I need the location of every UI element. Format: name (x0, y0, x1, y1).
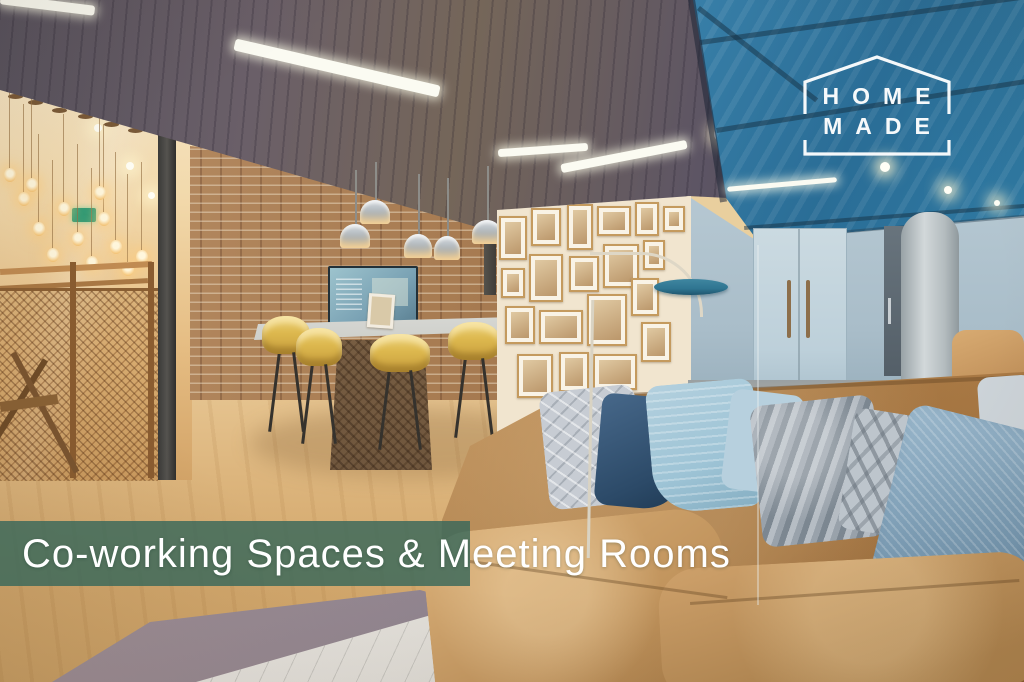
door-handle (787, 280, 791, 338)
mesh-post (70, 262, 76, 478)
mesh-post (148, 262, 154, 478)
festoon-bulb (72, 232, 84, 246)
caption-text: Co-working Spaces & Meeting Rooms (22, 533, 731, 575)
gallery-frame (517, 354, 553, 398)
door-split-line (798, 229, 800, 399)
logo-house-outline-bottom (805, 140, 949, 154)
gallery-frame (539, 310, 583, 344)
festoon-bulb (110, 240, 122, 254)
ceiling-spotlight (994, 200, 1000, 206)
downlight (148, 192, 155, 199)
festoon-bulb (4, 168, 16, 182)
gallery-frame (635, 202, 659, 236)
gallery-frame (529, 254, 563, 302)
gallery-frame (499, 216, 527, 260)
gallery-frame (559, 352, 589, 392)
ceiling-spotlight (880, 162, 890, 172)
bar-stool (448, 322, 500, 444)
festoon-bulb (26, 178, 38, 192)
door-handle (888, 298, 891, 324)
festoon-bulb (18, 192, 30, 206)
gallery-frame (501, 268, 525, 298)
photo-frame-on-table (367, 293, 395, 329)
home-made-logo: HOME MADE (799, 52, 955, 160)
festoon-bulb (47, 248, 59, 262)
gallery-frame (641, 322, 671, 362)
logo-text-line1: HOME (823, 83, 944, 109)
festoon-bulb (33, 222, 45, 236)
tv-menu-lines (336, 276, 362, 310)
photo-co-working-lounge: Co-working Spaces & Meeting Rooms HOME M… (0, 0, 1024, 682)
gallery-frame (597, 206, 631, 236)
festoon-bulb (58, 202, 70, 216)
gallery-frame (567, 204, 593, 250)
arc-lamp-shade (654, 279, 728, 295)
bar-stool (370, 334, 430, 456)
festoon-bulb (98, 212, 110, 226)
logo-text-line2: MADE (823, 113, 943, 139)
door-handle (806, 280, 810, 338)
downlight (94, 124, 102, 132)
chandelier-canopy (52, 108, 67, 113)
gallery-frame (531, 208, 561, 246)
thin-pole (757, 245, 759, 605)
bar-stool (296, 328, 342, 450)
exit-sign (72, 208, 96, 222)
downlight (126, 162, 134, 170)
concrete-column (901, 212, 959, 384)
gallery-frame (663, 206, 685, 232)
pendant-lamp (434, 178, 460, 260)
pendant-lamp (360, 162, 390, 224)
ceiling-spotlight (944, 186, 952, 194)
double-door (753, 228, 847, 402)
mesh-screen (0, 288, 158, 481)
festoon-bulb (94, 186, 106, 200)
pendant-lamp (404, 174, 432, 258)
gallery-frame (505, 306, 535, 344)
